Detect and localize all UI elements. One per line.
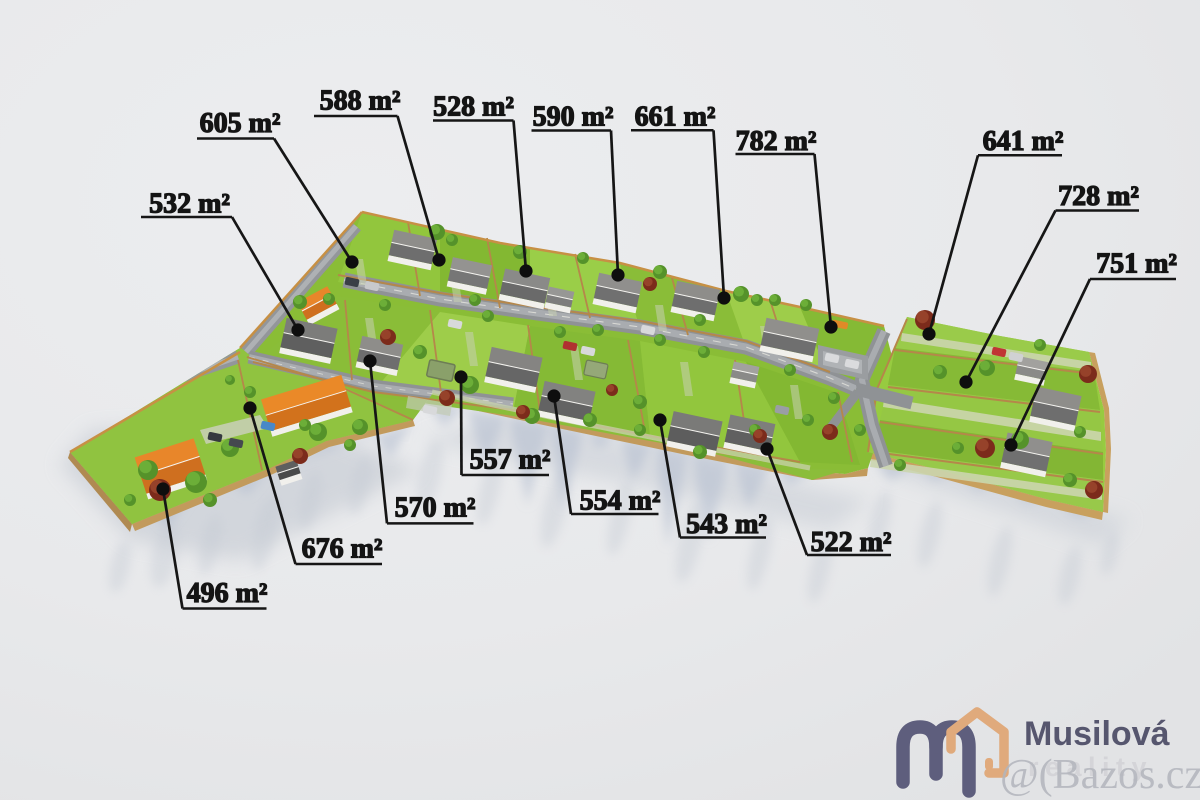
svg-text:554 m²: 554 m² — [580, 486, 661, 517]
svg-text:751 m²: 751 m² — [1096, 249, 1177, 280]
svg-text:641 m²: 641 m² — [983, 126, 1064, 157]
svg-text:588 m²: 588 m² — [320, 86, 401, 117]
svg-text:782 m²: 782 m² — [736, 126, 817, 157]
svg-text:605 m²: 605 m² — [200, 108, 281, 139]
svg-text:661 m²: 661 m² — [635, 102, 716, 133]
svg-text:Musilová: Musilová — [1024, 715, 1170, 753]
svg-text:522 m²: 522 m² — [811, 527, 892, 558]
svg-text:528 m²: 528 m² — [433, 92, 514, 123]
svg-text:557 m²: 557 m² — [470, 445, 551, 476]
svg-text:496 m²: 496 m² — [187, 578, 268, 609]
svg-text:728 m²: 728 m² — [1058, 181, 1139, 212]
svg-text:676 m²: 676 m² — [302, 534, 383, 565]
svg-text:@(Bazos.cz: @(Bazos.cz — [1000, 752, 1200, 798]
svg-text:590 m²: 590 m² — [533, 102, 614, 133]
svg-text:570 m²: 570 m² — [395, 493, 476, 524]
svg-text:543 m²: 543 m² — [686, 509, 767, 540]
svg-text:532 m²: 532 m² — [149, 189, 230, 220]
